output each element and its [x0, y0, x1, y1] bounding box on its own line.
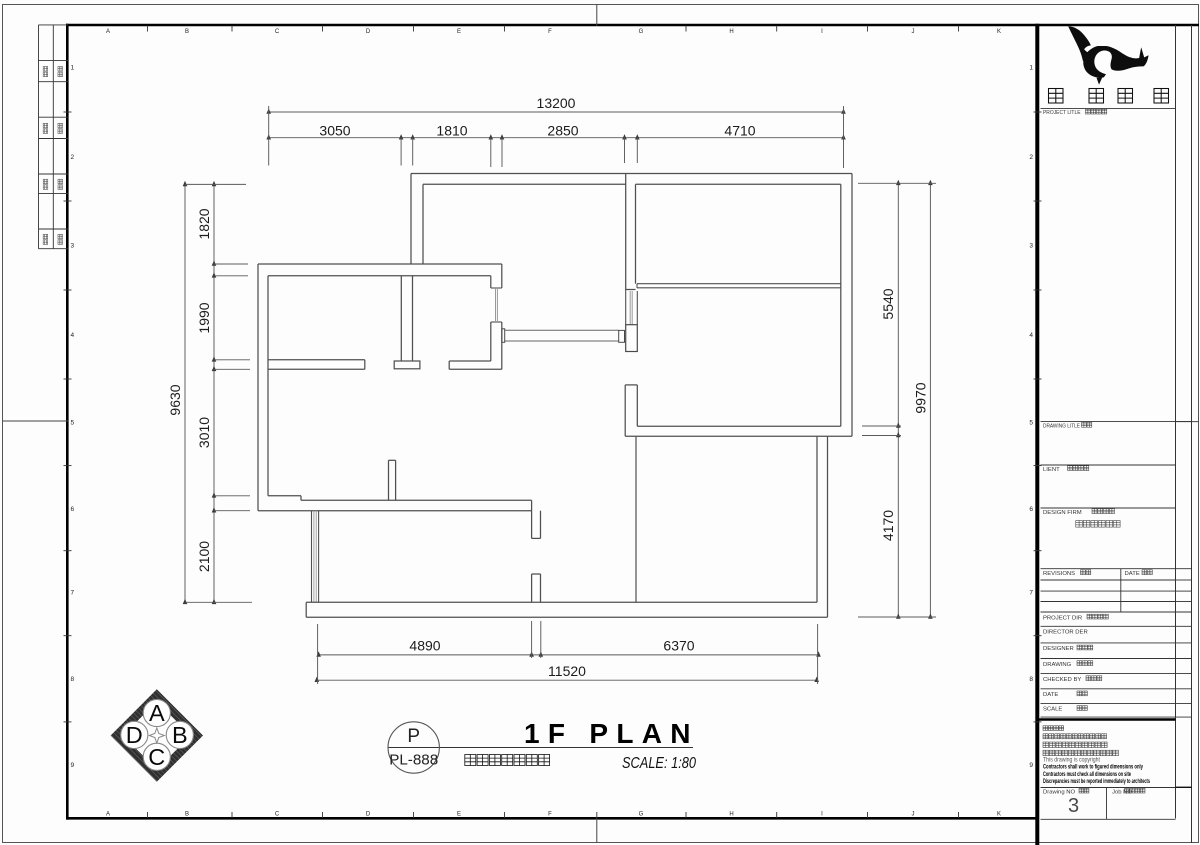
svg-text:C: C: [275, 29, 280, 35]
svg-text:Discrepancies must be reported: Discrepancies must be reported immediate…: [1043, 778, 1150, 785]
svg-text:2: 2: [71, 154, 75, 161]
svg-text:PROJECT LITLE: PROJECT LITLE: [1043, 110, 1081, 116]
svg-text:3: 3: [71, 243, 75, 250]
svg-text:DATE: DATE: [1043, 692, 1058, 698]
svg-text:C: C: [275, 812, 280, 818]
svg-text:A: A: [106, 29, 110, 35]
svg-text:REVISIONS: REVISIONS: [1043, 571, 1075, 577]
svg-text:9: 9: [71, 762, 75, 769]
svg-text:8: 8: [71, 676, 75, 683]
svg-text:K: K: [997, 812, 1001, 818]
svg-text:E: E: [457, 29, 461, 35]
svg-text:DESIGNER: DESIGNER: [1043, 646, 1074, 652]
svg-text:D: D: [126, 722, 143, 748]
svg-text:3010: 3010: [196, 417, 212, 448]
svg-text:G: G: [639, 29, 644, 35]
svg-text:2100: 2100: [196, 541, 212, 572]
svg-text:6370: 6370: [663, 638, 694, 654]
svg-text:8: 8: [1029, 676, 1033, 683]
svg-text:DRAWING LITLE: DRAWING LITLE: [1043, 423, 1080, 429]
svg-text:1820: 1820: [196, 208, 212, 239]
svg-text:1: 1: [71, 65, 75, 72]
svg-text:9: 9: [1029, 762, 1033, 769]
svg-text:2850: 2850: [547, 123, 578, 139]
svg-text:PROJECT DIR: PROJECT DIR: [1043, 615, 1082, 621]
svg-text:DRAWING: DRAWING: [1043, 662, 1072, 668]
svg-text:6: 6: [71, 506, 75, 513]
svg-text:B: B: [172, 722, 188, 748]
svg-text:3: 3: [1068, 795, 1079, 817]
svg-text:Contractors must check all dim: Contractors must check all dimensions on…: [1043, 771, 1131, 778]
svg-text:B: B: [185, 29, 189, 35]
svg-text:D: D: [366, 29, 371, 35]
svg-text:H: H: [729, 29, 733, 35]
svg-text:F: F: [548, 812, 552, 818]
svg-text:5: 5: [1029, 420, 1033, 427]
svg-text:SCALE: SCALE: [1043, 707, 1062, 713]
svg-text:6: 6: [1029, 506, 1033, 513]
svg-text:4: 4: [71, 332, 75, 339]
svg-text:A: A: [149, 700, 165, 726]
svg-text:2: 2: [1029, 154, 1033, 161]
svg-text:5540: 5540: [880, 288, 896, 319]
svg-text:7: 7: [71, 590, 75, 597]
svg-text:LIENT: LIENT: [1043, 467, 1060, 473]
svg-text:4710: 4710: [724, 123, 755, 139]
svg-text:7: 7: [1029, 590, 1033, 597]
svg-text:3050: 3050: [319, 123, 350, 139]
svg-text:This drawing is copyright: This drawing is copyright: [1043, 756, 1100, 763]
svg-text:1F PLAN: 1F PLAN: [524, 718, 699, 749]
svg-text:E: E: [457, 812, 461, 818]
svg-text:DESIGN FIRM: DESIGN FIRM: [1043, 510, 1082, 516]
svg-text:PL-888: PL-888: [389, 752, 438, 769]
svg-text:D: D: [366, 812, 371, 818]
svg-text:B: B: [185, 812, 189, 818]
svg-text:9970: 9970: [912, 382, 928, 413]
svg-text:CHECKED BY: CHECKED BY: [1043, 677, 1081, 683]
svg-text:SCALE: 1:80: SCALE: 1:80: [622, 755, 696, 772]
svg-text:C: C: [148, 744, 165, 770]
svg-text:P: P: [407, 726, 420, 747]
svg-text:DATE: DATE: [1125, 571, 1140, 577]
svg-text:K: K: [997, 29, 1001, 35]
svg-text:F: F: [548, 29, 552, 35]
svg-text:11520: 11520: [548, 663, 586, 679]
svg-text:A: A: [106, 812, 110, 818]
svg-text:DIRECTOR DER: DIRECTOR DER: [1043, 630, 1088, 636]
svg-text:Contractors shall work to figu: Contractors shall work to figured dimens…: [1043, 764, 1143, 771]
svg-text:4: 4: [1029, 332, 1033, 339]
svg-text:J: J: [912, 812, 915, 818]
svg-text:H: H: [729, 812, 733, 818]
svg-text:1990: 1990: [196, 302, 212, 333]
svg-text:5: 5: [71, 420, 75, 427]
svg-text:3: 3: [1029, 243, 1033, 250]
svg-text:9630: 9630: [167, 384, 183, 415]
svg-text:1: 1: [1029, 65, 1033, 72]
svg-text:4170: 4170: [880, 510, 896, 541]
svg-text:13200: 13200: [537, 95, 576, 111]
svg-text:J: J: [912, 29, 915, 35]
svg-text:4890: 4890: [409, 638, 440, 654]
svg-text:1810: 1810: [436, 123, 467, 139]
svg-text:G: G: [639, 812, 644, 818]
